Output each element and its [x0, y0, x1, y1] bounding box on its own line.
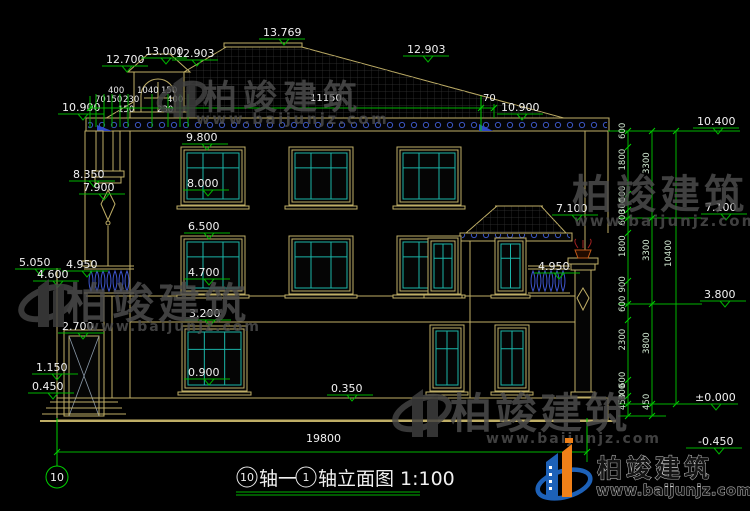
logo-url: www.baijunjz.com [596, 483, 750, 499]
window [285, 147, 357, 209]
dim-label: 3300 [642, 152, 652, 174]
watermark-url: www.baijunjz.com [86, 319, 261, 335]
dim-label: 10.400 [697, 115, 736, 128]
dim-label: 2300 [618, 329, 628, 351]
window [393, 147, 465, 209]
window [491, 238, 530, 298]
dim-label: 12.903 [407, 43, 446, 56]
dim-label: 12.903 [176, 47, 215, 60]
dim-label: 0.450 [32, 380, 64, 393]
title-scale: 1:100 [400, 468, 455, 490]
dim-label: 9.800 [186, 131, 218, 144]
dim-label: 8.000 [187, 177, 219, 190]
title-axis-end: 1 [303, 471, 310, 484]
window [424, 238, 462, 298]
dim-label: 450 [642, 394, 652, 410]
dim-label: 10.900 [501, 101, 540, 114]
window [178, 326, 251, 395]
dim-label: 1040 [137, 86, 159, 96]
cad-elevation-drawing: 12.70013.00012.90313.76912.90310.90010.9… [0, 0, 750, 511]
axis-bubble-number: 10 [50, 471, 64, 484]
dim-label: 10400 [664, 240, 674, 267]
dim-label: 1800 [618, 149, 628, 171]
watermark-url: www.baijunjz.com [574, 212, 750, 230]
title-axis-start: 10 [240, 471, 254, 484]
dim-label: 0.350 [331, 382, 363, 395]
watermark-url: www.baijunjz.com [486, 431, 661, 447]
elevation-canvas: 12.70013.00012.90313.76912.90310.90010.9… [0, 0, 750, 511]
dim-label: 13.769 [263, 26, 302, 39]
dim-label: 900 [618, 276, 628, 292]
dim-label: 12.700 [106, 53, 145, 66]
dim-label: 4.600 [37, 268, 69, 281]
title-text: 轴立面图 [318, 468, 394, 490]
watermark-url: www.baijunjz.com [196, 110, 389, 128]
watermark: 柏竣建筑 www.baijunjz.com [572, 172, 750, 230]
window [491, 325, 533, 395]
dim-label: 1800 [618, 235, 628, 257]
dim-label: 4.700 [188, 266, 220, 279]
dim-label: 7.900 [83, 181, 115, 194]
window [285, 236, 357, 298]
dim-label: 3.800 [704, 288, 736, 301]
logo-building-orange-icon [562, 444, 572, 497]
dim-label: 3800 [642, 332, 652, 354]
dim-label: 6.500 [188, 220, 220, 233]
dim-label: 4.950 [538, 260, 570, 273]
dim-label: 8.350 [73, 168, 105, 181]
dim-label: 600 [618, 123, 628, 139]
dim-label: 3300 [642, 239, 652, 261]
dim-label: 230 [123, 95, 139, 105]
window [426, 325, 468, 395]
watermark: 柏竣建筑 www.baijunjz.com [17, 279, 261, 335]
dim-label: 70 [483, 93, 496, 104]
dim-label: 0.900 [188, 366, 220, 379]
dim-label: 600 [618, 296, 628, 312]
dim-label: 1.150 [36, 361, 68, 374]
dim-label: ±0.000 [695, 391, 736, 404]
dim-label: 19800 [306, 432, 341, 445]
title-text: 轴一 [259, 468, 297, 490]
dim-label: -0.450 [698, 435, 733, 448]
dim-label: 4.950 [66, 258, 98, 271]
logo-brand: 柏竣建筑 [597, 454, 713, 483]
